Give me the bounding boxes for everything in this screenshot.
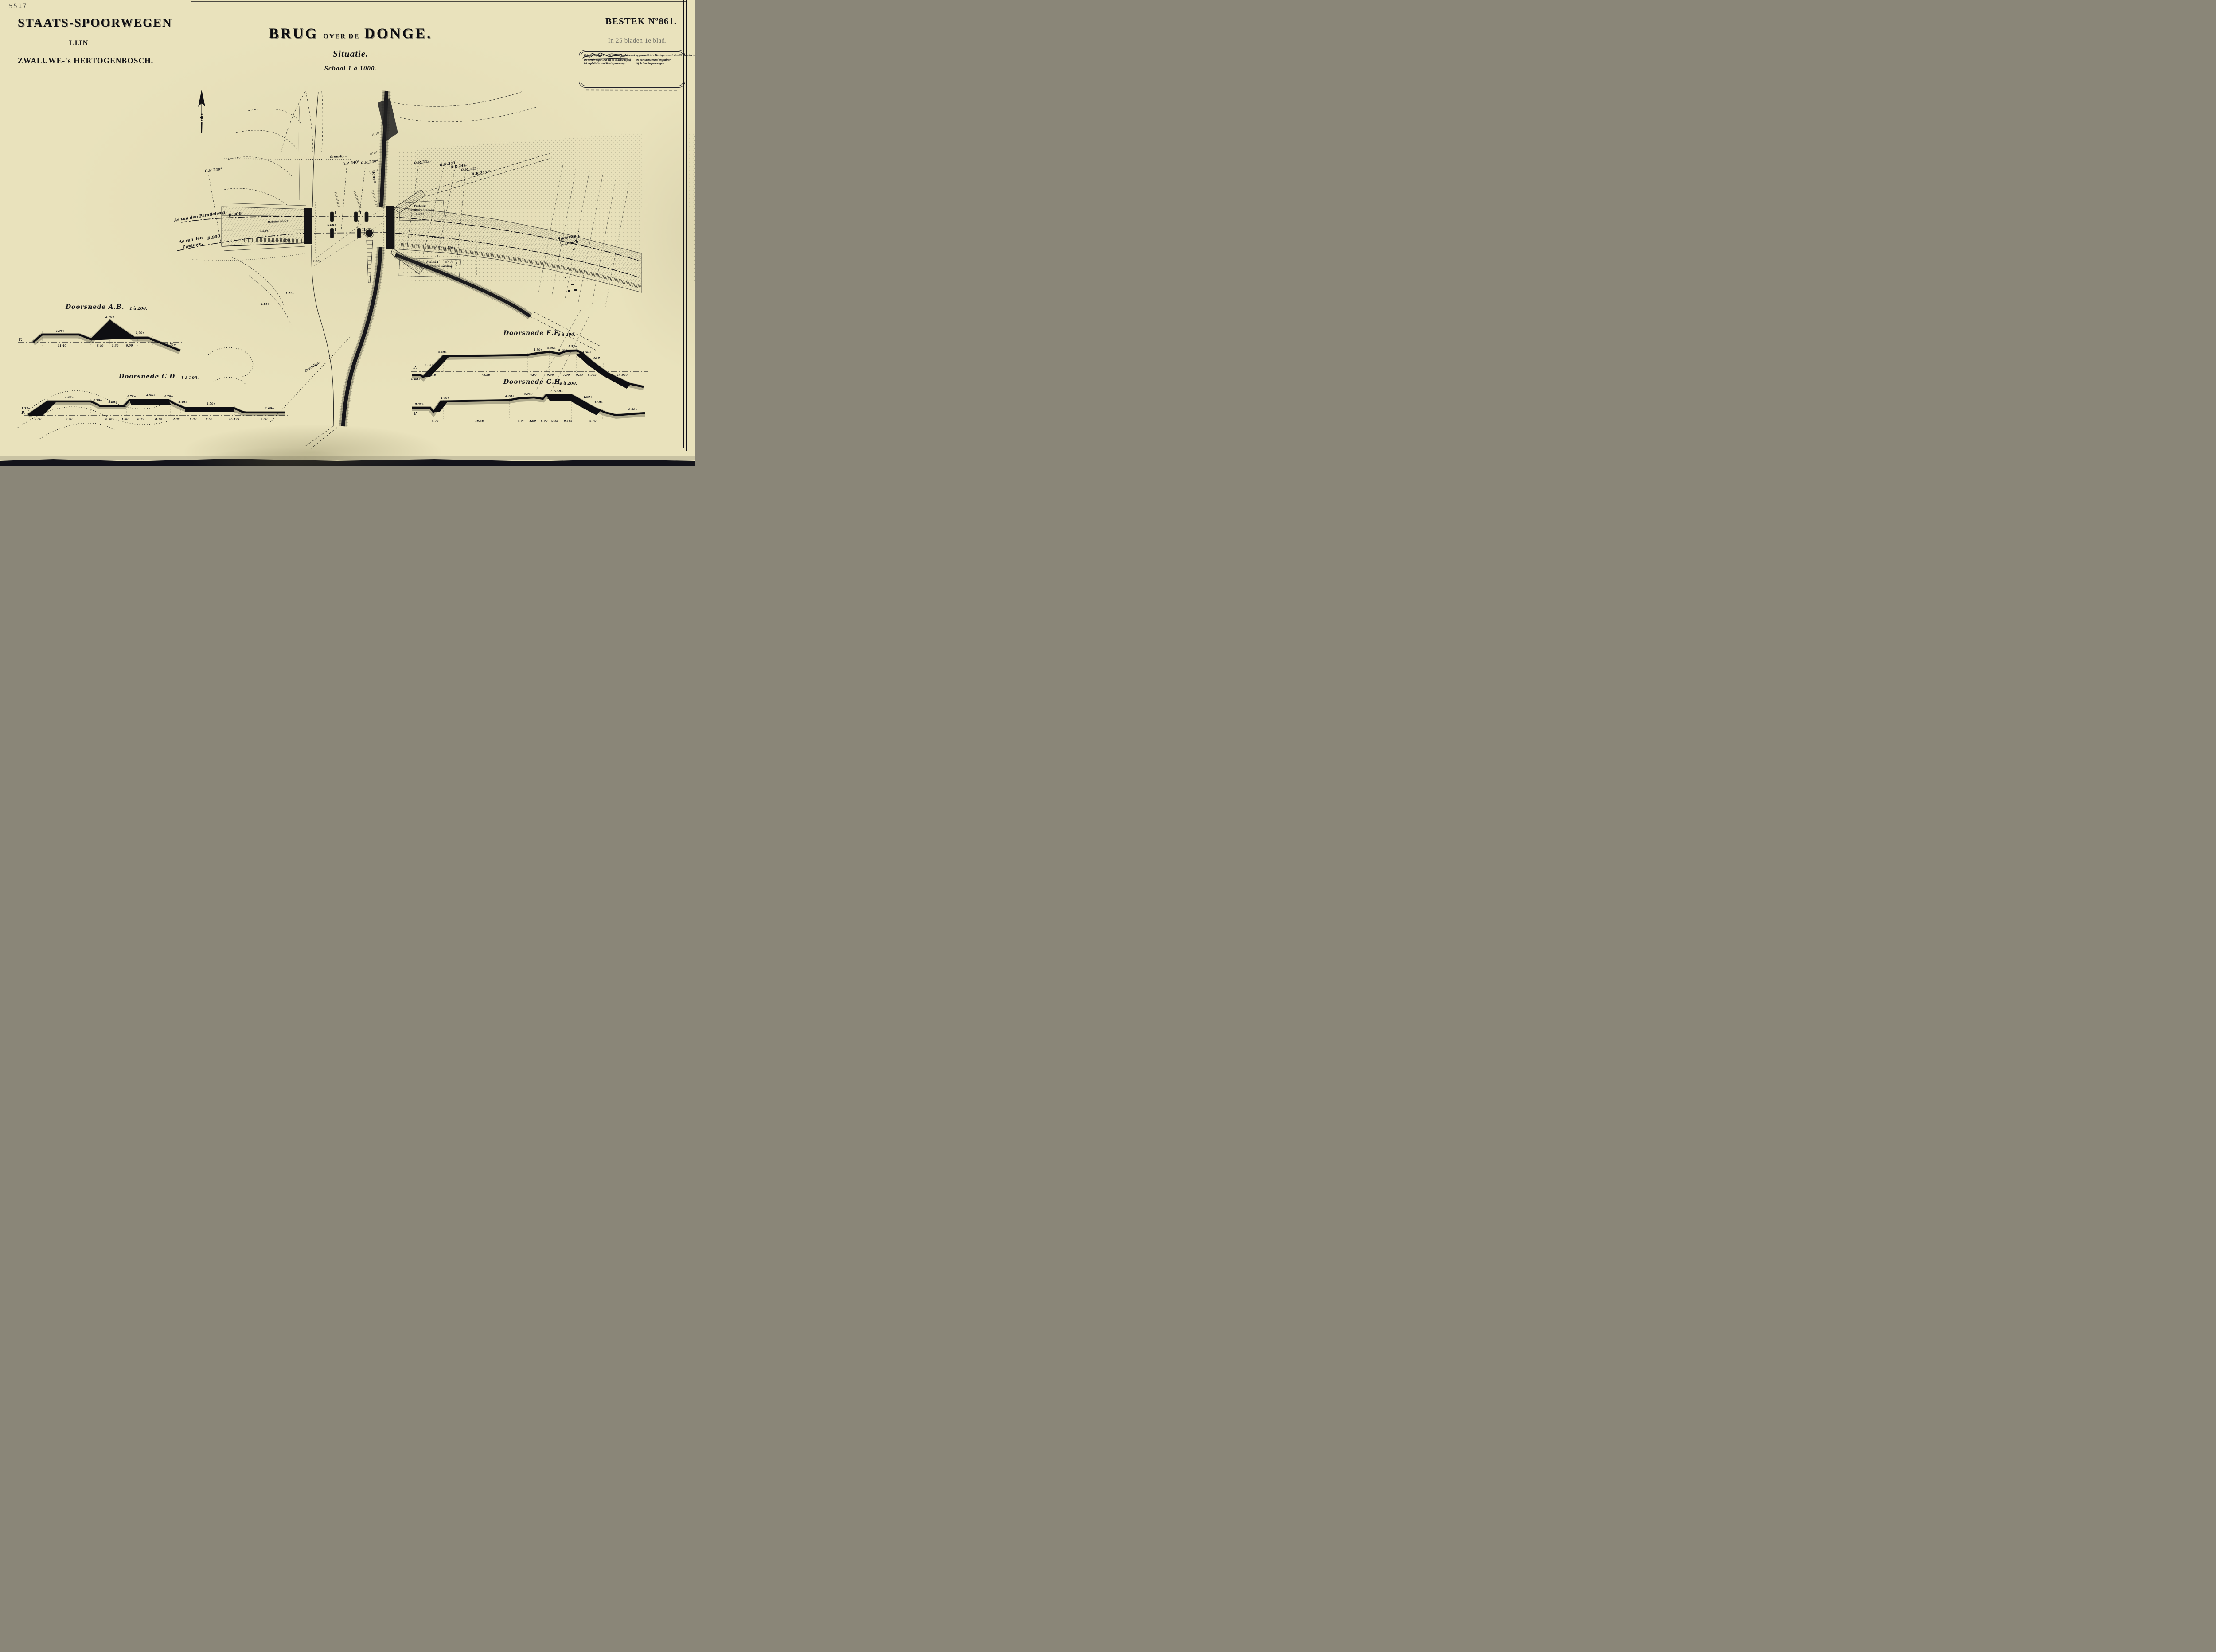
approval-stamp-inner: Behoort bij het Proces verbaal in drievo… [581,51,684,86]
bridge-pier [330,228,334,238]
swing-pier [366,229,373,237]
bestek-number: BESTEK Nº861. [605,16,677,27]
title-block-center: BRUG OVER DE DONGE. Situatie. Schaal 1 à… [246,26,455,73]
stamp-right-title1: De eerstaanwezend Ingenieur [636,58,680,62]
sheet-number: 5517 [9,3,27,10]
stamp-left-title2: tot exploitatie van Staatsspoorwegen. [584,62,636,66]
stamp-right-title2: bij de Staatsspoorwegen. [636,62,680,66]
org-title: STAATS-SPOORWEGEN [18,16,140,30]
donge-dike [343,91,398,426]
stamp-right-col: De eerstaanwezend Ingenieur bij de Staat… [636,58,680,66]
east-abutment [386,206,394,249]
title-block-left: STAATS-SPOORWEGEN LIJN ZWALUWE-'s HERTOG… [18,16,140,66]
bridge-pier [357,228,361,238]
scale-note: Schaal 1 à 1000. [246,65,455,73]
north-arrow-icon [198,90,205,133]
profile-GH [412,395,645,417]
title-donge: DONGE. [364,26,432,42]
river-banks [299,92,333,426]
title-brug: BRUG [269,26,318,42]
approval-stamp: Behoort bij het Proces verbaal in drievo… [579,50,685,88]
profile-CD [28,400,285,416]
line-label: LIJN [18,39,140,47]
bridge-pier [354,212,358,222]
line-name: ZWALUWE-'s HERTOGENBOSCH. [18,56,140,66]
old-meanders [18,336,351,448]
bridge-pier [330,212,334,222]
west-abutment [304,208,312,244]
subtitle: Situatie. [246,48,455,59]
main-title: BRUG OVER DE DONGE. [246,26,455,42]
drawing-sheet: As van den Parallelweg.R.300.As van denZ… [0,0,695,466]
profile-AB [33,319,180,352]
guide-jetty [367,240,373,283]
west-embankment [191,203,306,261]
title-over: OVER DE [323,33,359,40]
bladen-note: In 25 bladen 1e blad. [608,37,667,45]
signature-right [581,52,624,62]
bridge-pier [365,212,368,222]
profile-EF [412,351,644,389]
